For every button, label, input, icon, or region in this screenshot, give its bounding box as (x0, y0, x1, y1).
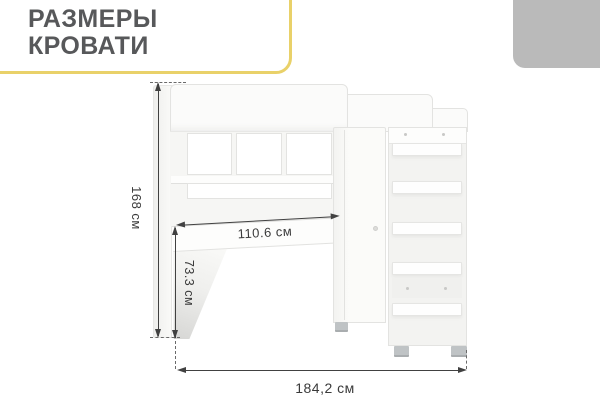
bunk-guard-rail (170, 84, 348, 132)
headboard-window (286, 133, 332, 175)
ladder-rung (392, 303, 462, 316)
headboard-window (187, 133, 232, 175)
ladder-rung (392, 222, 462, 235)
arrowhead-icon (177, 367, 186, 373)
arrowhead-icon (172, 330, 178, 339)
wardrobe-foot (335, 322, 348, 332)
ladder-back-panel (392, 278, 462, 298)
arrowhead-icon (176, 222, 185, 228)
wardrobe (333, 127, 386, 323)
screw-dot (404, 133, 407, 136)
dimension-line-desk-height (175, 228, 177, 338)
ladder-top-cap (389, 128, 466, 144)
ladder-foot (394, 346, 409, 357)
arrowhead-icon (331, 213, 340, 219)
bed-illustration (0, 0, 600, 400)
wardrobe-handle (373, 226, 378, 231)
headboard-window (236, 133, 282, 175)
ladder-rung (392, 143, 462, 156)
dimension-label-desk-height: 73.3 см (181, 243, 197, 323)
ladder-rung (392, 181, 462, 194)
screw-dot (406, 287, 409, 290)
extension-line (175, 341, 176, 369)
shelf-opening (187, 183, 332, 199)
dimension-line-height (158, 84, 160, 336)
arrowhead-icon (458, 367, 467, 373)
ladder-rung (392, 262, 462, 275)
ladder-foot (451, 346, 467, 357)
screw-dot (442, 133, 445, 136)
arrowhead-icon (155, 82, 161, 91)
dimension-line-total-width (180, 370, 464, 372)
dimension-label-height: 168 см (128, 168, 144, 248)
screw-dot (444, 287, 447, 290)
dimension-label-total-width: 184,2 см (263, 380, 387, 396)
wardrobe-door-gap (344, 130, 345, 320)
